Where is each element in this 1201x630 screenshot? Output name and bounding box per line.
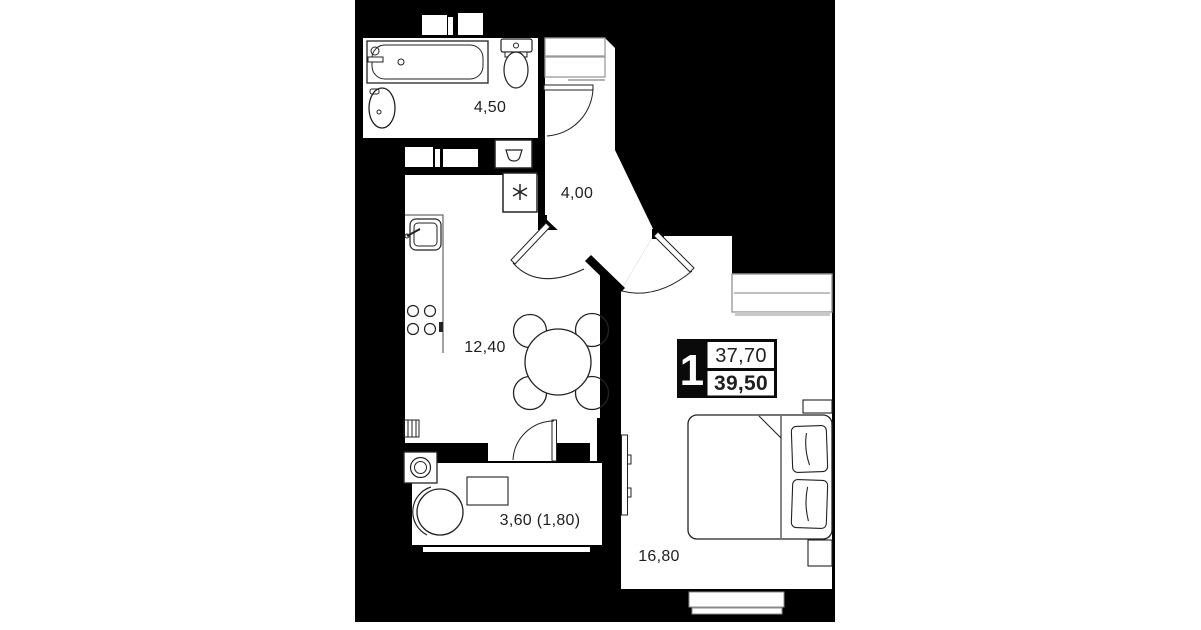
floorplan-canvas: 1 37,70 39,50 4,50 4,00 12,40 3,60 (1,80… — [355, 0, 835, 622]
wall-balcony-right — [597, 418, 621, 463]
armchair-icon — [417, 489, 463, 535]
bedroom-window — [689, 592, 784, 607]
bathtub-icon — [367, 41, 488, 83]
unit-area-upper: 37,70 — [715, 345, 767, 367]
bathtub-faucet-handle — [368, 57, 383, 62]
kitchen-area-label: 12,40 — [464, 339, 506, 356]
hallway-area-label: 4,00 — [561, 185, 593, 202]
vent-shaft — [435, 149, 440, 167]
bedroom-area-label: 16,80 — [638, 548, 680, 565]
vent-shaft — [422, 15, 447, 35]
toilet-tank — [501, 39, 532, 52]
pillow-icon — [791, 479, 828, 528]
bathroom-door-leaf — [544, 85, 593, 90]
balcony-table-icon — [467, 477, 508, 505]
bedroom-wardrobe-base — [735, 312, 830, 316]
unit-area-lower: 39,50 — [714, 372, 768, 395]
balcony-door-leaf — [552, 420, 557, 461]
washer-icon — [404, 452, 437, 483]
bathroom-area-label: 4,50 — [474, 99, 506, 116]
vent-shaft — [443, 149, 478, 167]
balcony-glazing — [423, 547, 590, 552]
balcony-area-label: 3,60 (1,80) — [500, 512, 581, 529]
wall-balcony-door — [557, 443, 590, 463]
toilet-bowl-icon — [504, 52, 528, 88]
pillow-icon — [791, 425, 828, 472]
hall-wardrobe-top — [545, 38, 605, 56]
bedroom-window-sill — [692, 608, 782, 614]
unit-rooms-count: 1 — [680, 346, 705, 395]
vent-shaft — [405, 147, 433, 167]
nightstand-icon — [808, 540, 832, 566]
unit-badge: 1 37,70 39,50 — [677, 339, 777, 398]
vent-shaft — [458, 13, 483, 35]
dining-table-icon — [525, 329, 591, 395]
floorplan-drawing: 1 37,70 39,50 4,50 4,00 12,40 3,60 (1,80… — [355, 0, 835, 622]
hall-wardrobe-bottom — [545, 57, 605, 77]
nightstand-icon — [803, 400, 832, 413]
vent-shaft — [448, 17, 453, 35]
